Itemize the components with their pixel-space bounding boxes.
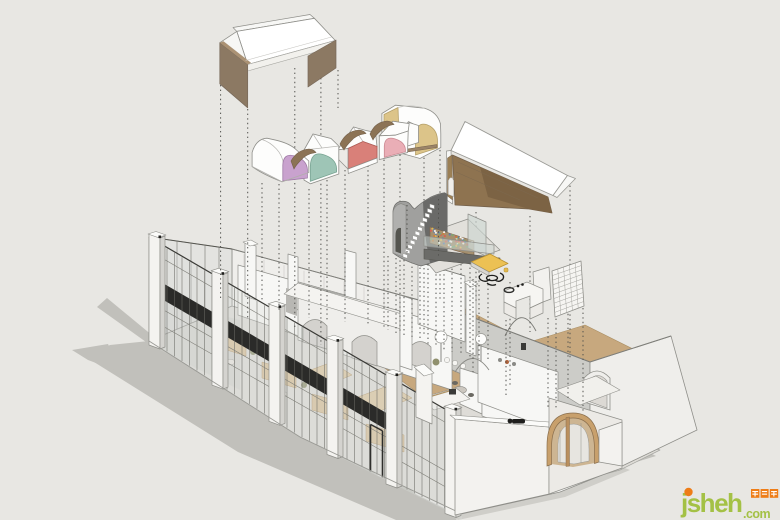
svg-text:.com: .com [743,507,771,520]
